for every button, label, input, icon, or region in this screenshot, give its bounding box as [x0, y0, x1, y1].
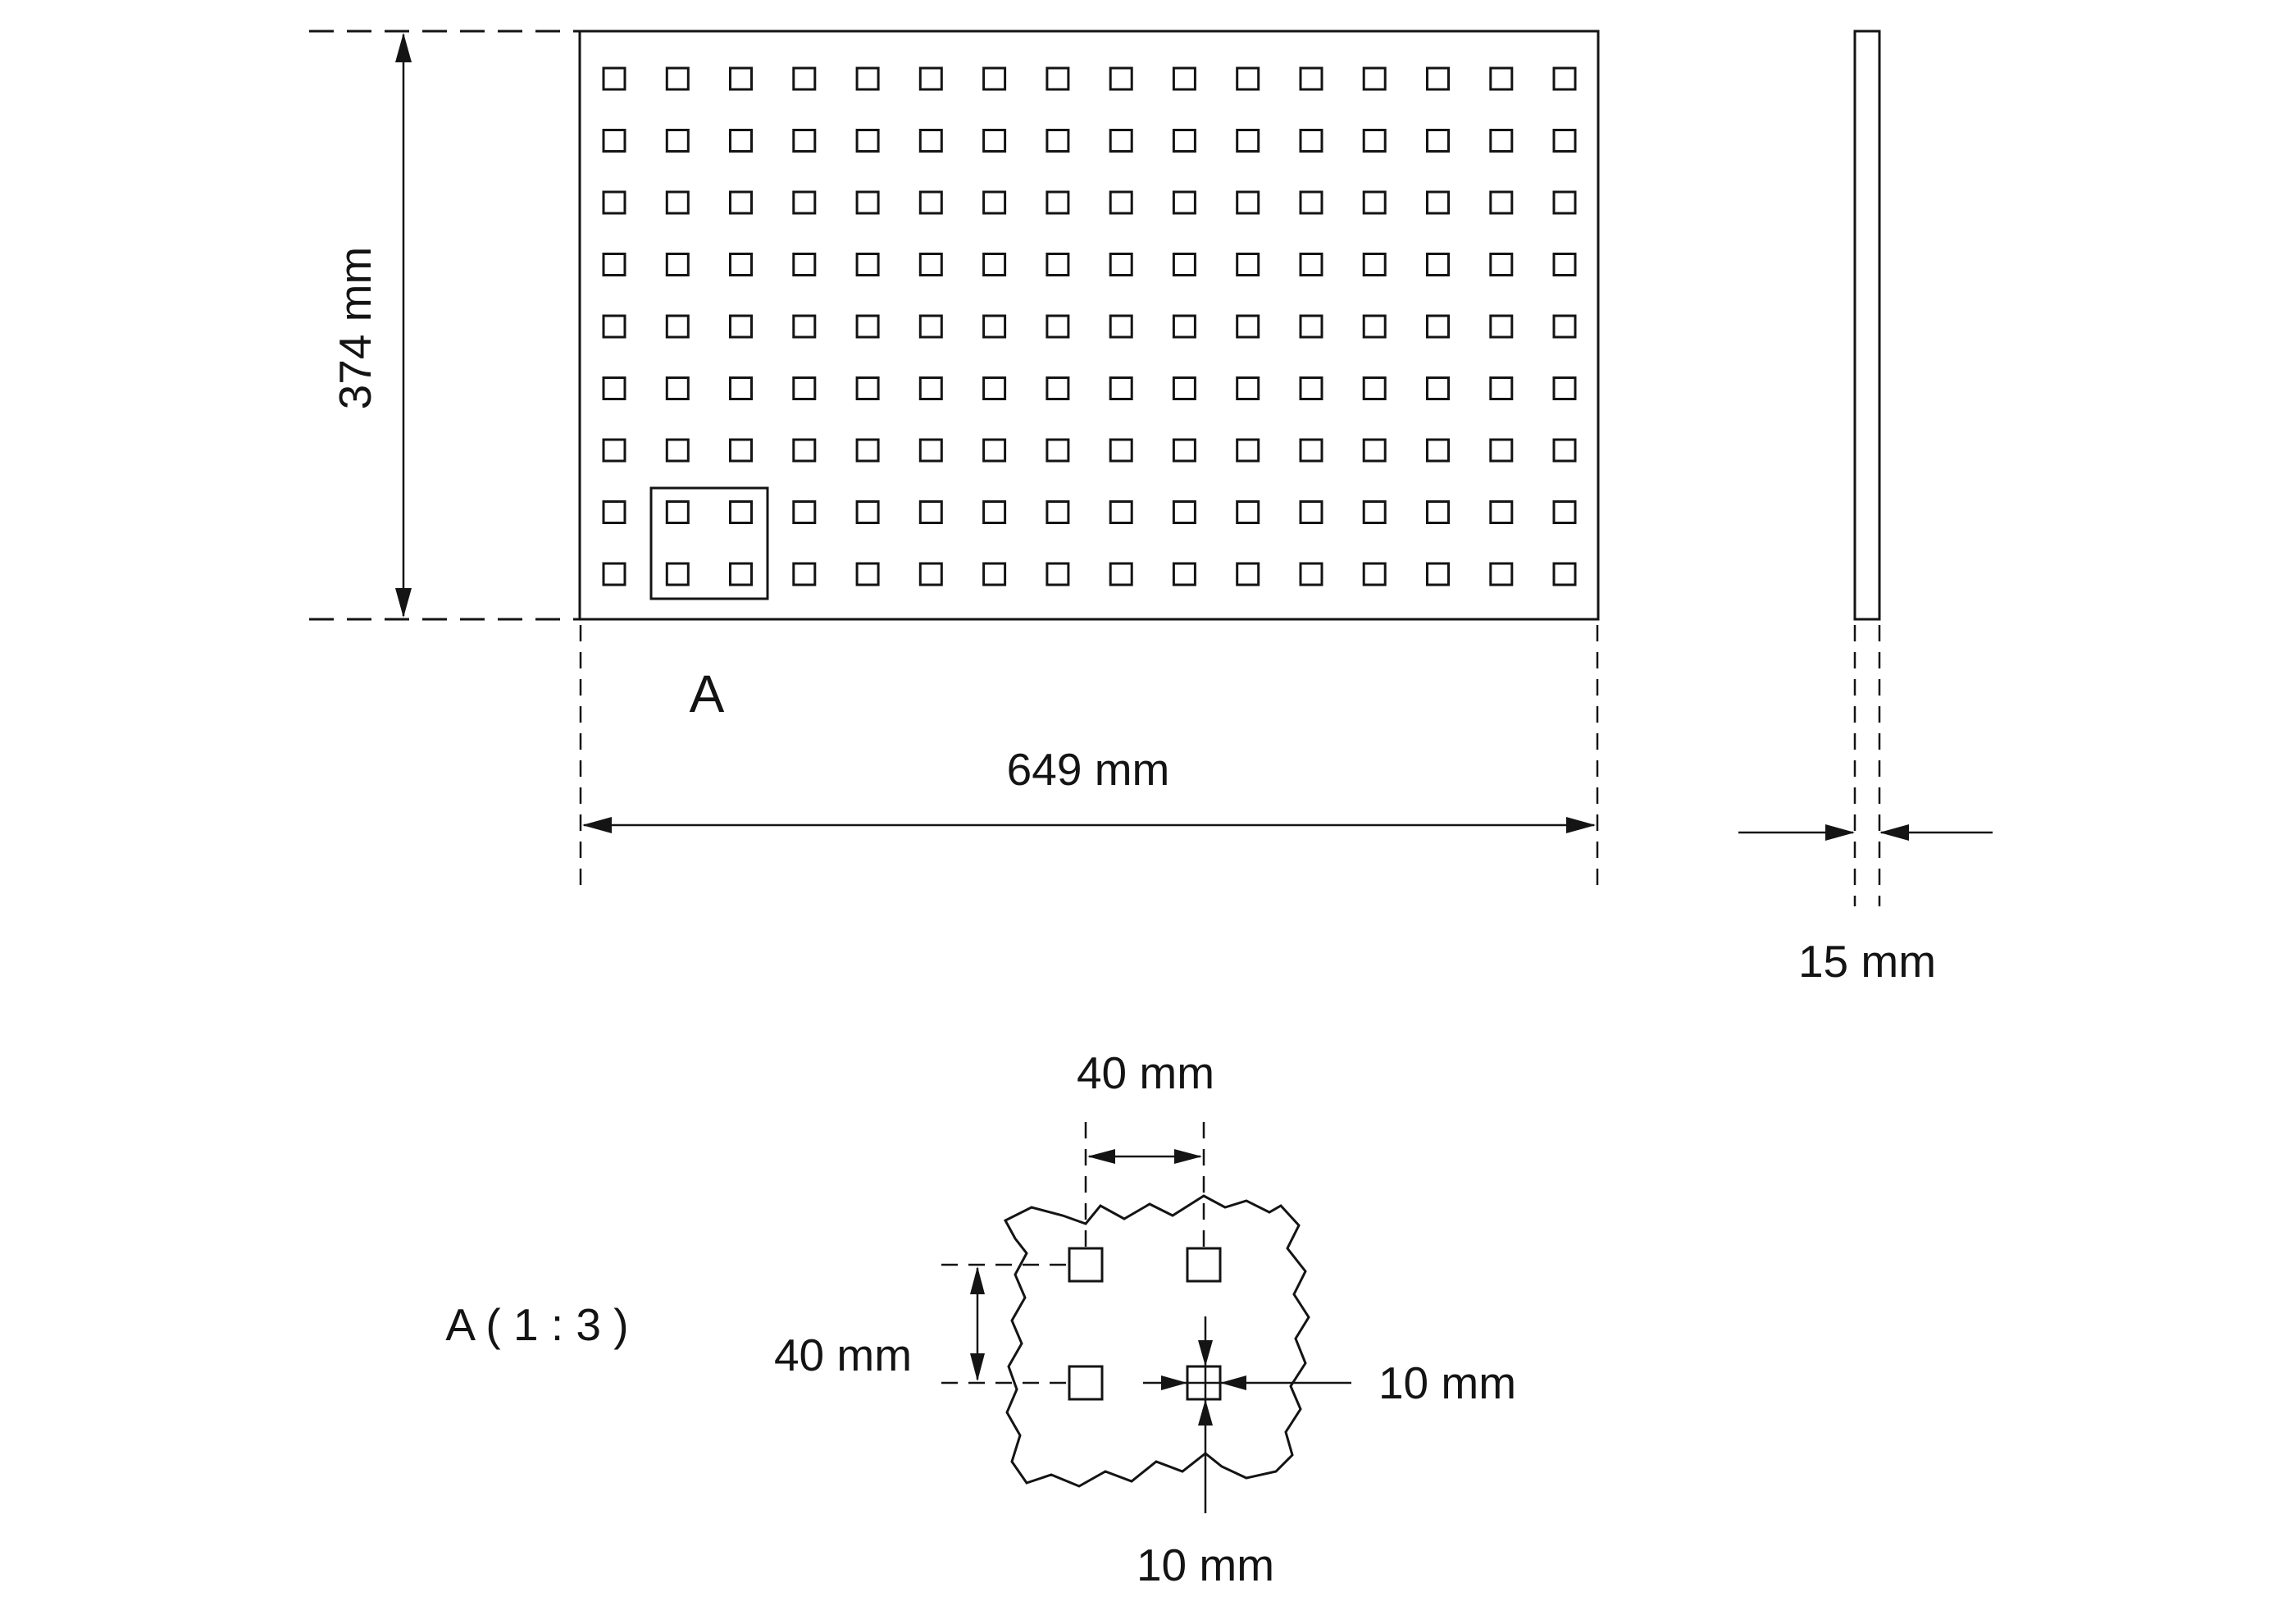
square-hole [667, 192, 688, 213]
square-hole [667, 502, 688, 523]
square-hole [1173, 68, 1195, 89]
square-hole [857, 440, 878, 461]
square-hole [1301, 254, 1322, 276]
square-hole [857, 316, 878, 337]
square-hole [1110, 68, 1132, 89]
square-hole [1047, 502, 1068, 523]
arrowhead-up [1198, 1399, 1213, 1426]
square-hole [604, 192, 625, 213]
square-hole [1554, 68, 1575, 89]
square-hole [1237, 502, 1259, 523]
square-hole [731, 563, 752, 585]
square-hole [1047, 192, 1068, 213]
square-hole [667, 316, 688, 337]
square-hole [1428, 130, 1449, 152]
arrowhead-right [1566, 817, 1596, 833]
square-hole [1364, 192, 1385, 213]
square-hole [731, 316, 752, 337]
arrowhead-right [1174, 1149, 1202, 1164]
arrowhead-right [1161, 1375, 1187, 1390]
arrowhead-up [970, 1266, 985, 1294]
detail-hole-bottom-left [1069, 1366, 1102, 1399]
plate-outline [580, 31, 1598, 619]
square-hole [857, 563, 878, 585]
thickness-dimension-label: 15 mm [1798, 936, 1936, 987]
technical-drawing: A 374 mm 649 mm 15 mm A ( 1 : 3 ) [0, 0, 2296, 1624]
torn-edge-boundary [1005, 1196, 1309, 1486]
square-hole [1110, 316, 1132, 337]
arrowhead-down [395, 588, 412, 618]
square-hole [667, 130, 688, 152]
width-dimension-label: 649 mm [1007, 744, 1170, 795]
height-dimension-label: 374 mm [330, 247, 380, 410]
square-hole [1047, 378, 1068, 399]
square-hole [794, 68, 815, 89]
square-hole [1364, 254, 1385, 276]
square-hole [1301, 440, 1322, 461]
square-hole [984, 192, 1005, 213]
square-hole [604, 316, 625, 337]
square-hole [920, 378, 941, 399]
square-hole [920, 192, 941, 213]
square-hole [731, 502, 752, 523]
square-hole [1047, 68, 1068, 89]
square-hole [1110, 130, 1132, 152]
square-hole [1364, 563, 1385, 585]
square-hole [1047, 563, 1068, 585]
square-hole [984, 502, 1005, 523]
square-hole [1491, 316, 1512, 337]
square-hole [1110, 378, 1132, 399]
square-hole [1491, 440, 1512, 461]
square-hole [1173, 378, 1195, 399]
square-hole [857, 378, 878, 399]
square-hole [1110, 440, 1132, 461]
height-dimension: 374 mm [309, 31, 580, 619]
square-hole [1491, 563, 1512, 585]
square-hole [1173, 254, 1195, 276]
square-hole [794, 440, 815, 461]
square-hole [1237, 316, 1259, 337]
arrowhead-left [1879, 824, 1909, 841]
square-hole [731, 192, 752, 213]
arrowhead-right [1825, 824, 1855, 841]
hole-width-label: 10 mm [1378, 1357, 1516, 1408]
square-hole [920, 316, 941, 337]
square-hole [1301, 130, 1322, 152]
square-hole [794, 563, 815, 585]
square-hole [1301, 563, 1322, 585]
square-hole [1428, 378, 1449, 399]
square-hole [1491, 130, 1512, 152]
square-hole [1364, 502, 1385, 523]
detail-marker-label: A [690, 664, 725, 723]
square-hole [1173, 192, 1195, 213]
square-hole [1173, 440, 1195, 461]
square-hole [984, 440, 1005, 461]
square-hole [604, 378, 625, 399]
square-hole [1301, 502, 1322, 523]
square-hole [1554, 316, 1575, 337]
square-hole [1301, 316, 1322, 337]
square-hole [604, 254, 625, 276]
square-hole [1554, 378, 1575, 399]
square-hole [1428, 502, 1449, 523]
square-hole [604, 68, 625, 89]
arrowhead-down [970, 1353, 985, 1381]
square-hole [1554, 440, 1575, 461]
square-hole [667, 378, 688, 399]
square-hole [857, 68, 878, 89]
square-hole [1110, 563, 1132, 585]
square-hole [1491, 378, 1512, 399]
square-hole [1237, 254, 1259, 276]
square-hole [1428, 316, 1449, 337]
square-hole [1237, 440, 1259, 461]
square-hole [1110, 254, 1132, 276]
square-hole [667, 254, 688, 276]
square-hole [1237, 192, 1259, 213]
square-hole [1428, 440, 1449, 461]
arrowhead-left [582, 817, 612, 833]
square-hole [794, 378, 815, 399]
pitch-y-label: 40 mm [774, 1330, 912, 1380]
square-hole [794, 130, 815, 152]
square-hole [1364, 68, 1385, 89]
square-hole [1491, 254, 1512, 276]
square-hole [1554, 563, 1575, 585]
square-hole [1364, 378, 1385, 399]
hole-height-label: 10 mm [1137, 1540, 1274, 1590]
square-hole [604, 440, 625, 461]
square-hole [1237, 68, 1259, 89]
arrowhead-up [395, 33, 412, 62]
front-view: A [580, 31, 1598, 723]
square-hole [1301, 192, 1322, 213]
side-outline [1855, 31, 1879, 619]
arrowhead-down [1198, 1340, 1213, 1366]
square-hole [984, 68, 1005, 89]
detail-hole-top-right [1187, 1248, 1220, 1281]
square-hole [1237, 563, 1259, 585]
square-hole [1428, 563, 1449, 585]
square-hole [1173, 502, 1195, 523]
square-hole [984, 316, 1005, 337]
detail-view-title: A ( 1 : 3 ) [445, 1299, 628, 1350]
square-hole [857, 130, 878, 152]
detail-hole-top-left [1069, 1248, 1102, 1281]
arrowhead-left [1220, 1375, 1246, 1390]
pitch-x-label: 40 mm [1077, 1047, 1214, 1098]
square-hole [984, 378, 1005, 399]
square-hole [1173, 316, 1195, 337]
square-hole [1554, 502, 1575, 523]
arrowhead-left [1087, 1149, 1115, 1164]
square-hole [1491, 502, 1512, 523]
square-hole [920, 130, 941, 152]
square-hole [604, 502, 625, 523]
square-hole [1237, 130, 1259, 152]
square-hole [731, 254, 752, 276]
detail-view: A ( 1 : 3 ) 40 mm 40 mm [445, 1047, 1516, 1590]
pitch-x-dimension: 40 mm [1077, 1047, 1214, 1247]
square-hole [794, 192, 815, 213]
square-hole [1110, 192, 1132, 213]
square-hole [1428, 254, 1449, 276]
square-hole [667, 440, 688, 461]
square-hole [1110, 502, 1132, 523]
square-hole [604, 563, 625, 585]
square-hole [920, 440, 941, 461]
square-hole [984, 254, 1005, 276]
square-hole [1554, 130, 1575, 152]
square-hole [667, 563, 688, 585]
hole-width-dimension: 10 mm [1143, 1357, 1516, 1408]
square-hole [857, 502, 878, 523]
square-hole [1428, 192, 1449, 213]
square-hole [731, 130, 752, 152]
square-hole [731, 378, 752, 399]
square-hole [1237, 378, 1259, 399]
square-hole [794, 502, 815, 523]
square-hole [1047, 254, 1068, 276]
square-hole [731, 68, 752, 89]
width-dimension: 649 mm [581, 625, 1597, 892]
pitch-y-dimension: 40 mm [774, 1265, 1068, 1383]
square-hole [984, 563, 1005, 585]
square-hole [1491, 68, 1512, 89]
square-hole [920, 502, 941, 523]
square-hole [1173, 130, 1195, 152]
square-hole [920, 563, 941, 585]
side-view: 15 mm [1738, 31, 1993, 987]
square-hole [1047, 130, 1068, 152]
detail-callout-box [651, 488, 768, 599]
square-hole [984, 130, 1005, 152]
square-hole [920, 68, 941, 89]
square-hole [1173, 563, 1195, 585]
square-hole [1364, 440, 1385, 461]
square-hole [1428, 68, 1449, 89]
square-hole [667, 68, 688, 89]
square-hole [1554, 254, 1575, 276]
square-hole [604, 130, 625, 152]
square-hole [1491, 192, 1512, 213]
square-hole [1554, 192, 1575, 213]
square-hole [1301, 378, 1322, 399]
hole-height-dimension: 10 mm [1137, 1316, 1274, 1590]
square-hole [1047, 440, 1068, 461]
square-hole [1047, 316, 1068, 337]
square-hole [1364, 316, 1385, 337]
square-hole [1364, 130, 1385, 152]
square-hole [1301, 68, 1322, 89]
square-hole [857, 254, 878, 276]
square-hole [794, 316, 815, 337]
square-hole [920, 254, 941, 276]
square-hole [794, 254, 815, 276]
square-hole [857, 192, 878, 213]
square-hole [731, 440, 752, 461]
hole-grid [604, 68, 1575, 585]
